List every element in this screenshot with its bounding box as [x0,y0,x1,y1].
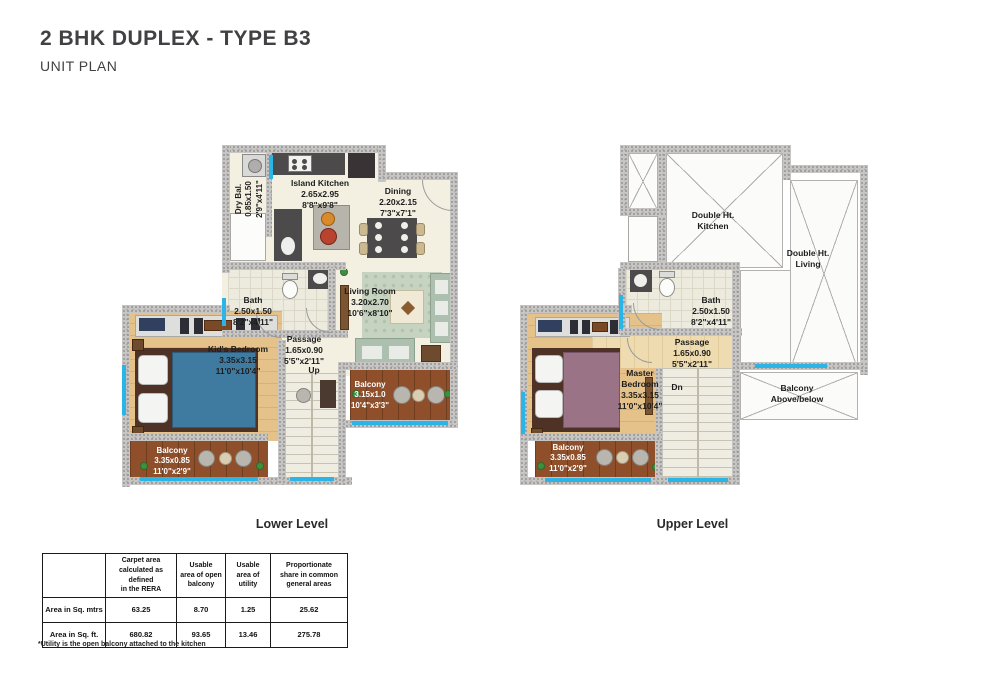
balcony-table [219,452,232,465]
room-label-kids-bedroom: Kid's Bedroom 3.35x3.15 11'0"x10'4" [203,344,273,377]
dining-table [367,218,417,258]
plate [401,246,408,253]
table-cell: 13.46 [226,623,271,648]
page-title: 2 BHK DUPLEX - TYPE B3 [40,27,311,51]
row-label: Area in Sq. mtrs [43,598,106,623]
room-dims-ft: 11'0"x2'9" [142,467,202,477]
sink-basin [634,274,647,287]
room-label-bath: Bath 2.50x1.50 8'2"x4'11" [681,295,741,328]
sink-basin [313,273,327,284]
plate [375,246,382,253]
room-dims-m: 3.20x2.70 [335,297,405,308]
wardrobe [535,317,630,337]
service-shaft [628,216,658,262]
cushion [435,301,448,315]
room-dims-m: 3.15x1.0 [340,390,400,400]
toilet-icon [658,271,677,298]
balcony-chair [235,450,252,467]
wall [130,433,268,441]
table-cell: 8.70 [177,598,226,623]
room-dims-ft: 11'0"x10'4" [203,366,273,377]
bath-sink [630,270,652,292]
window [122,365,126,415]
table-header-cell: Proportionate share in common general ar… [271,554,348,598]
room-dims-m: 2.50x1.50 [223,306,283,317]
table-header-row: Carpet area calculated as defined in the… [43,554,348,598]
plate [401,234,408,241]
desk-chair [296,388,311,403]
window [290,477,334,481]
room-dims-ft: 8'8"x9'8" [285,200,355,211]
balcony-chair [427,386,445,404]
sofa-two-seat [355,338,415,364]
burner [302,165,307,170]
pillow [535,355,563,383]
double-height-living-extension [740,270,790,368]
room-dims-m: 3.35x0.85 [142,456,202,466]
room-dims-m: 2.50x1.50 [681,306,741,317]
lower-level-caption: Lower Level [118,517,466,531]
room-label-bath: Bath 2.50x1.50 8'2"x4'11" [223,295,283,328]
table-row: Area in Sq. mtrs 63.25 8.70 1.25 25.62 [43,598,348,623]
cushion [362,346,382,359]
table-cell: 63.25 [106,598,177,623]
room-name: Passage [274,334,334,345]
window [755,364,827,368]
plate [375,222,382,229]
room-dims-m: 3.35x3.15 [203,355,273,366]
window [619,295,623,329]
room-dims-ft: 11'0"x2'9" [538,464,598,474]
stairs-direction-text: Dn [671,382,682,392]
wall [620,328,742,336]
window [545,478,651,482]
room-name: Kid's Bedroom [203,344,273,355]
room-name: Dining [368,186,428,197]
kitchen-sink-cabinet [274,209,302,261]
balcony-chair [632,449,649,466]
room-dims-ft: 2'9"x4'11" [255,154,265,244]
room-dims-ft: 10'6"x8'10" [335,308,405,319]
food-platter [321,212,335,226]
wall [528,433,662,441]
dining-chair [416,242,425,255]
room-name: Double Ht. Living [773,248,843,270]
sink-basin [281,237,295,255]
room-label-double-ht-living: Double Ht. Living [773,248,843,270]
table-header-cell: Usable area of utility [226,554,271,598]
room-dims-ft: 8'2"x4'11" [681,317,741,328]
toilet-tank [282,273,298,280]
table-cell: 25.62 [271,598,348,623]
wall [658,145,666,268]
wall [783,145,791,180]
balcony-table [412,389,425,402]
table-header-cell [43,554,106,598]
wall [622,145,790,153]
hanging-clothes [582,320,590,334]
wall [620,262,740,270]
wardrobe-box [139,318,165,331]
hanging-clothes [180,318,189,334]
stove-icon [288,155,312,172]
kitchen-island [313,205,350,250]
room-label-dry-bal: Dry Bal. 0.85x1.50 2'9"x4'11" [234,154,262,244]
toilet-bowl [659,278,675,297]
wall [228,145,386,153]
room-name: Bath [681,295,741,306]
stairs-direction-text: Up [308,365,319,375]
room-label-passage: Passage 1.65x0.90 5'5"x2'11" [274,334,334,367]
pillow [138,355,168,385]
table-cell: 275.78 [271,623,348,648]
burner [292,159,297,164]
room-name: Double Ht. Kitchen [678,210,748,232]
toilet-tank [659,271,675,278]
room-dims-ft: 10'4"x3'3" [340,401,400,411]
room-name: Balcony [340,380,400,390]
dry-balcony-void [628,153,658,210]
room-label-balcony-bottom: Balcony 3.35x0.85 11'0"x2'9" [142,446,202,477]
room-label-double-ht-kitchen: Double Ht. Kitchen [678,210,748,232]
study-desk [320,380,336,408]
room-name: Passage [662,337,722,348]
room-name: Bath [223,295,283,306]
lower-level-plan: Dry Bal. 0.85x1.50 2'9"x4'11" Island Kit… [118,143,466,491]
hanging-clothes [610,320,618,334]
room-dims-m: 1.65x0.90 [662,348,722,359]
room-dims-m: 1.65x0.90 [274,345,334,356]
utility-footnote: *Utility is the open balcony attached to… [38,641,206,648]
wall [783,165,868,173]
wall [345,362,458,370]
room-dims-m: 0.85x1.50 [244,154,254,244]
wardrobe-box [538,320,562,332]
window [668,478,728,482]
wall [378,172,458,180]
room-dims-ft: 7'3"x7'1" [368,208,428,219]
room-label-living-room: Living Room 3.20x2.70 10'6"x8'10" [335,286,405,319]
room-dims-m: 2.65x2.95 [285,189,355,200]
room-label-passage: Passage 1.65x0.90 5'5"x2'11" [662,337,722,370]
toilet-bowl [282,280,298,299]
double-height-living-area [790,180,858,368]
room-name: Balcony [538,443,598,453]
balcony-table [616,451,629,464]
window [140,477,258,481]
stairs-divider [697,368,699,477]
room-label-dining: Dining 2.20x2.15 7'3"x7'1" [368,186,428,219]
wall [520,305,632,313]
side-table [421,345,441,362]
room-dims-m: 2.20x2.15 [368,197,428,208]
table-cell: 1.25 [226,598,271,623]
room-dims-m: 3.35x0.85 [538,453,598,463]
suitcase [592,322,608,332]
hanging-clothes [194,318,203,334]
stairs-direction-label: Up [302,365,326,376]
toilet-icon [280,273,300,300]
plate [401,222,408,229]
hanging-clothes [570,320,578,334]
window [269,155,273,179]
cushion [435,280,448,294]
wall [222,145,230,273]
dining-chair [359,223,368,236]
pillow [535,390,563,418]
burner [302,159,307,164]
room-label-island-kitchen: Island Kitchen 2.65x2.95 8'8"x9'8" [285,178,355,211]
room-label-balcony-bottom: Balcony 3.35x0.85 11'0"x2'9" [538,443,598,474]
wall [620,145,628,215]
nightstand [132,339,144,351]
table-header-cell: Carpet area calculated as defined in the… [106,554,177,598]
footprint-mask [386,141,468,172]
unit-plan-page: { "header": { "title": "2 BHK DUPLEX - T… [0,0,1000,673]
plate [375,234,382,241]
window [352,421,448,425]
wall [122,305,230,313]
sofa-long [430,273,452,343]
room-name: Dry Bal. [234,154,244,244]
room-dims-ft: 8'2"x4'11" [223,317,283,328]
window [521,392,525,434]
stairs-divider [311,373,313,477]
area-table: Carpet area calculated as defined in the… [42,553,348,648]
balcony-chair [596,449,613,466]
room-name: Island Kitchen [285,178,355,189]
cushion [435,322,448,336]
burner [292,165,297,170]
upper-level-caption: Upper Level [515,517,870,531]
upper-level-plan: Double Ht. Kitchen Double Ht. Living Bat… [515,140,870,488]
food-platter [320,228,337,245]
room-name: Balcony [142,446,202,456]
dining-chair [359,242,368,255]
table-header-cell: Usable area of open balcony [177,554,226,598]
room-label-balcony-void: Balcony Above/below [762,383,832,405]
room-name: Living Room [335,286,405,297]
room-dims-ft: 11'0"x10'4" [605,401,675,412]
room-label-balcony-right: Balcony 3.15x1.0 10'4"x3'3" [340,380,400,411]
cushion [389,346,409,359]
room-name: Balcony Above/below [762,383,832,405]
plant-icon [256,462,264,470]
page-subtitle: UNIT PLAN [40,58,117,74]
dining-chair [416,223,425,236]
stairs-direction-label: Dn [665,382,689,393]
pillow [138,393,168,423]
fridge [348,153,375,178]
area-table-container: Carpet area calculated as defined in the… [42,553,348,648]
wall [620,208,666,216]
wall [860,165,868,375]
